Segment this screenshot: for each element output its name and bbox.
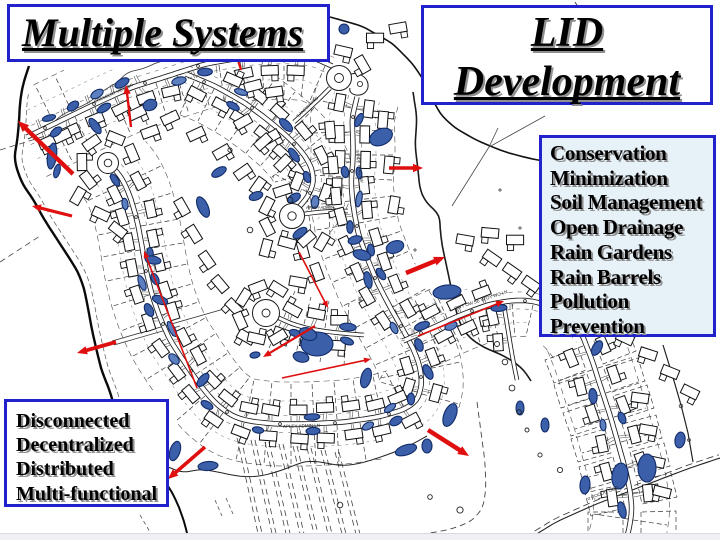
svg-text:APLEY-ADMIN: APLEY-ADMIN — [306, 205, 334, 210]
